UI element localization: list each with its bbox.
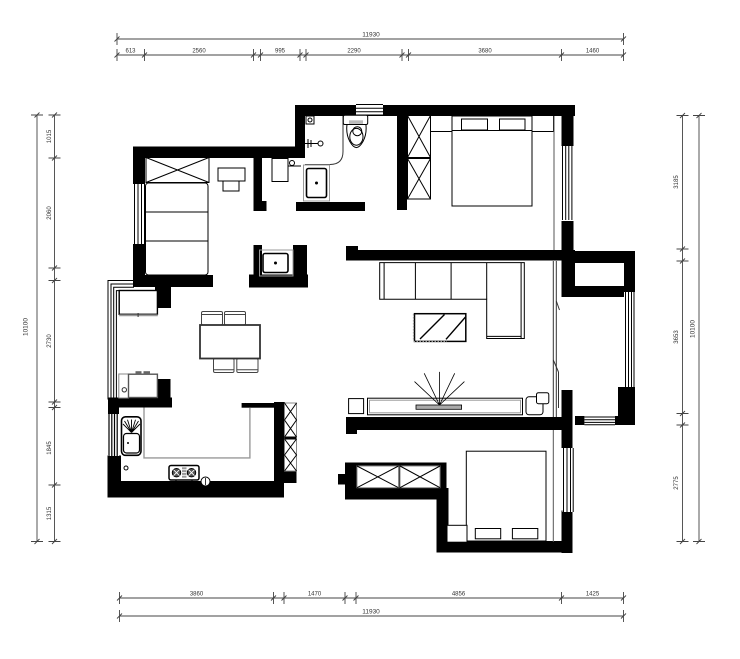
svg-text:3680: 3680 [478, 49, 492, 55]
svg-text:2290: 2290 [347, 49, 361, 55]
svg-text:3860: 3860 [190, 592, 204, 598]
svg-text:1470: 1470 [308, 592, 322, 598]
svg-text:2560: 2560 [192, 49, 206, 55]
svg-text:10100: 10100 [690, 320, 697, 338]
svg-text:4856: 4856 [452, 592, 466, 598]
svg-text:2730: 2730 [47, 334, 53, 348]
svg-text:1425: 1425 [586, 592, 600, 598]
svg-text:1015: 1015 [47, 129, 53, 143]
svg-text:11930: 11930 [362, 609, 380, 616]
svg-text:2775: 2775 [674, 476, 680, 490]
svg-text:995: 995 [275, 49, 286, 55]
svg-text:11930: 11930 [362, 32, 380, 39]
svg-text:1845: 1845 [47, 441, 53, 455]
svg-text:2060: 2060 [47, 206, 53, 220]
svg-text:1315: 1315 [47, 506, 53, 520]
svg-text:3653: 3653 [674, 330, 680, 344]
svg-text:3185: 3185 [674, 175, 680, 189]
svg-text:1460: 1460 [586, 49, 600, 55]
svg-text:10100: 10100 [23, 318, 30, 336]
svg-text:613: 613 [125, 49, 136, 55]
